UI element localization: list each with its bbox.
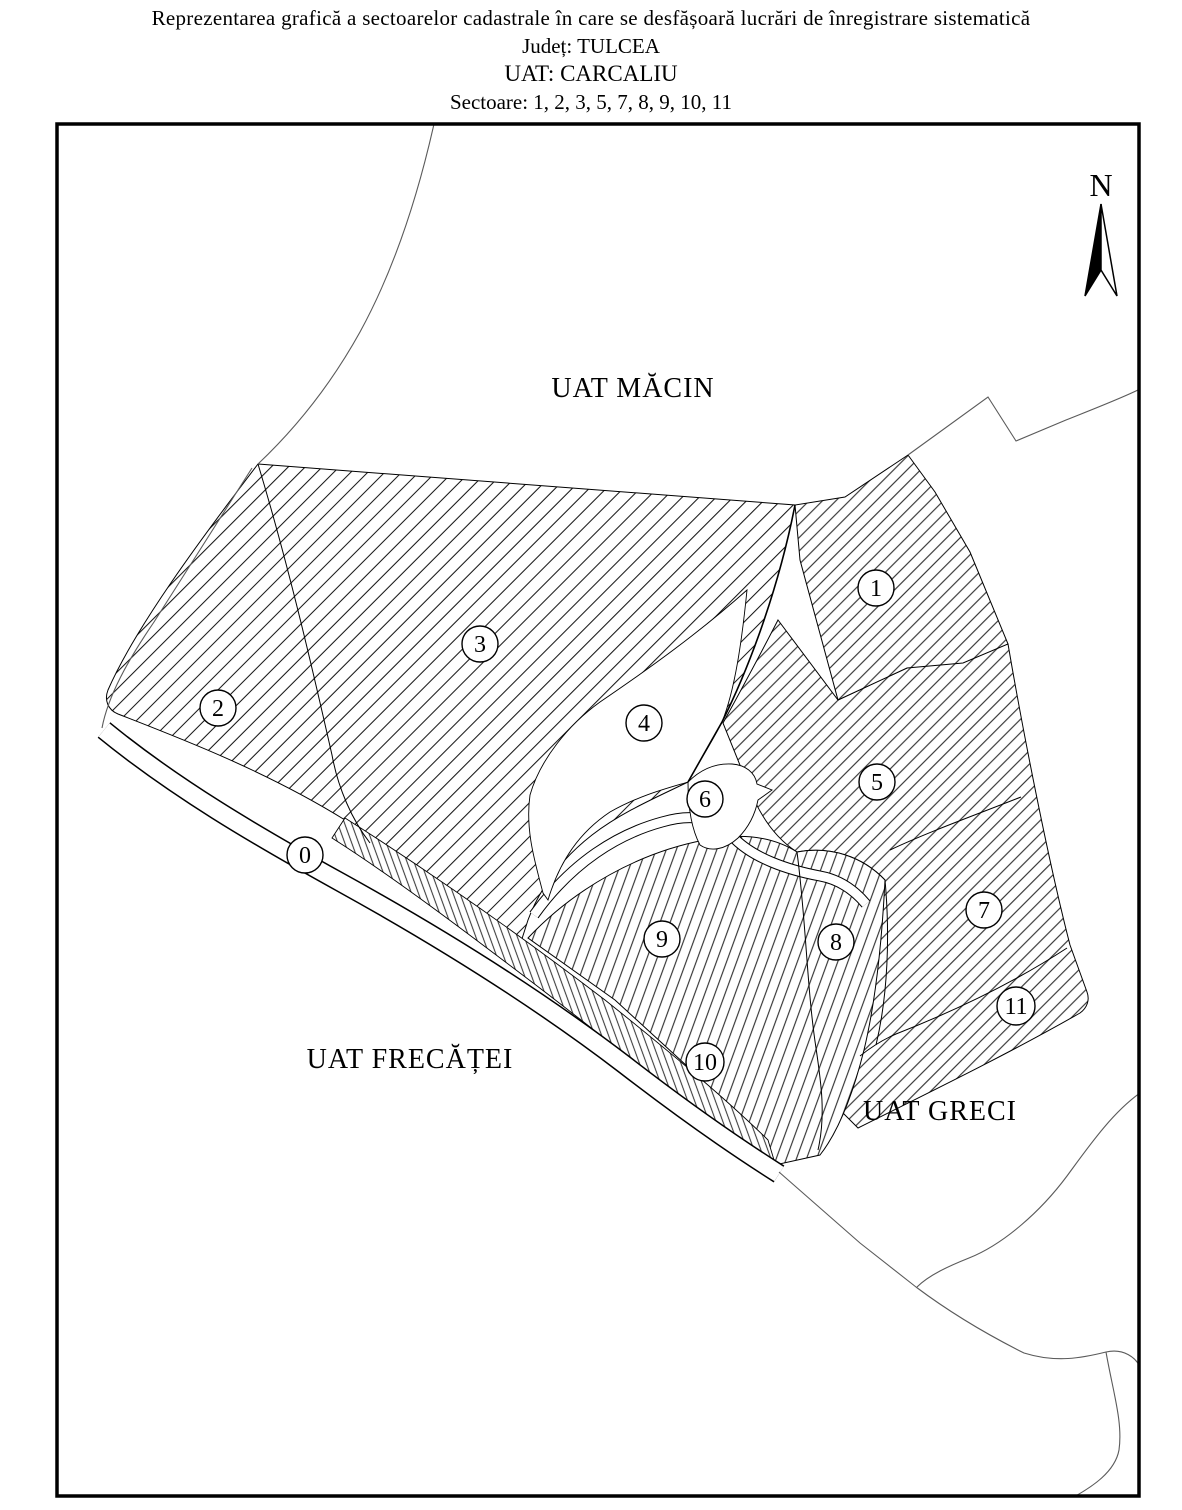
svg-text:8: 8	[830, 930, 842, 956]
north-label: N	[1089, 167, 1112, 203]
svg-text:10: 10	[693, 1050, 717, 1076]
uat-line-top-left	[258, 124, 434, 464]
sector-marker-6: 6	[687, 781, 723, 817]
sector-marker-4: 4	[626, 705, 662, 741]
uat-line-bottom-3	[1072, 1352, 1120, 1498]
sector-marker-3: 3	[462, 626, 498, 662]
svg-text:6: 6	[699, 787, 711, 813]
sector-marker-11: 11	[997, 987, 1035, 1025]
cadastral-map: UAT MĂCIN UAT FRECĂȚEI UAT GRECI N 0 1 2	[0, 0, 1182, 1510]
svg-text:2: 2	[212, 696, 224, 722]
sector-marker-1: 1	[858, 570, 894, 606]
svg-text:1: 1	[870, 576, 882, 602]
svg-text:4: 4	[638, 711, 650, 737]
svg-text:9: 9	[656, 927, 668, 953]
svg-text:7: 7	[978, 898, 990, 924]
svg-text:5: 5	[871, 770, 883, 796]
sector-marker-0: 0	[287, 837, 323, 873]
svg-text:3: 3	[474, 632, 486, 658]
svg-text:11: 11	[1004, 994, 1027, 1020]
sector-marker-10: 10	[686, 1043, 724, 1081]
sector-marker-7: 7	[966, 892, 1002, 928]
uat-line-bottom-1	[779, 1172, 1140, 1367]
sector-marker-9: 9	[644, 921, 680, 957]
sector-marker-8: 8	[818, 924, 854, 960]
neighbor-label-frecatei: UAT FRECĂȚEI	[307, 1044, 514, 1075]
neighbor-label-macin: UAT MĂCIN	[551, 373, 714, 404]
uat-line-top-right	[908, 389, 1140, 455]
north-arrow-icon: N	[1085, 167, 1117, 296]
sector-marker-5: 5	[859, 764, 895, 800]
neighbor-label-greci: UAT GRECI	[863, 1096, 1017, 1127]
sector-marker-2: 2	[200, 690, 236, 726]
svg-text:0: 0	[299, 843, 311, 869]
